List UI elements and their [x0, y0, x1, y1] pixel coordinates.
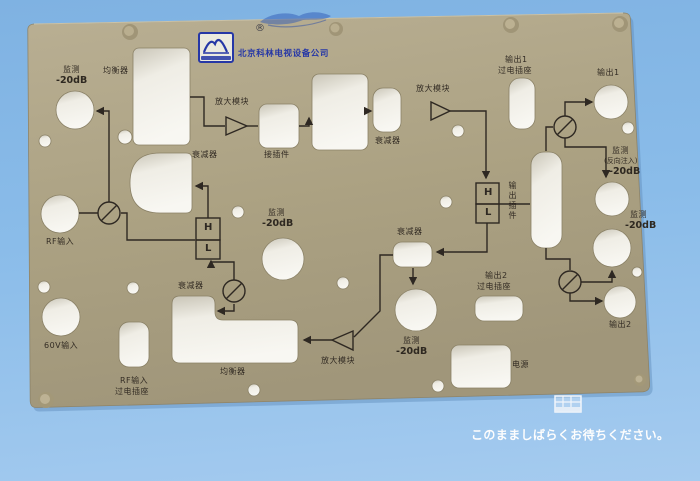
- label-equalizer-top: 均衡器: [103, 66, 129, 75]
- label-low-1: L: [205, 244, 211, 254]
- attenuator-mid-cutout: [393, 242, 432, 267]
- label-equalizer-bottom: 均衡器: [220, 367, 246, 376]
- label-monitor-c-2: -20dB: [262, 219, 293, 228]
- out1-socket-cutout: [509, 78, 535, 129]
- equalizer-cutout: [133, 48, 190, 145]
- label-power: 电源: [512, 360, 529, 369]
- out2-socket-cutout: [475, 296, 523, 321]
- label-rf-socket-1: RF输入: [120, 376, 148, 385]
- label-high-1: H: [204, 223, 212, 233]
- company-name: 北京科林电视设备公司: [238, 47, 329, 59]
- label-monitor-tl-db: -20dB: [56, 76, 87, 85]
- label-attn-mid: 衰减器: [397, 227, 423, 236]
- label-low-2: L: [485, 208, 491, 218]
- monitor-right-hole: [593, 229, 631, 267]
- label-out2-socket-2: 过电插座: [477, 282, 511, 291]
- monitor-center-hole: [262, 238, 304, 280]
- label-output-module: 输出插件: [508, 181, 517, 233]
- label-monitor-b-2: -20dB: [396, 347, 427, 356]
- arch-logo-icon: [199, 33, 233, 62]
- output-module-cutout: [531, 152, 562, 248]
- label-monitor-r-2: -20dB: [625, 221, 656, 230]
- label-attn-l: 衰减器: [178, 281, 204, 290]
- attenuator-c-cutout: [373, 88, 401, 132]
- attenuator-d-cutout: [130, 153, 192, 213]
- label-attn-c: 衰减器: [375, 136, 401, 145]
- monitor-tl-hole: [56, 91, 94, 129]
- out2-hole: [604, 286, 636, 318]
- label-60v-in: 60V输入: [44, 341, 78, 350]
- rf-input-hole: [41, 195, 79, 233]
- label-rf-socket-2: 过电插座: [115, 387, 149, 396]
- label-monitor-rev-2: (反向注入): [604, 157, 637, 166]
- table-grid-icon: [555, 396, 581, 412]
- v60-input-hole: [42, 298, 80, 336]
- label-monitor-b-1: 监测: [403, 336, 420, 345]
- registered-mark: ®: [255, 23, 265, 34]
- wait-message: このまましばらくお待ちください。: [471, 426, 669, 443]
- label-out2-socket-1: 输出2: [485, 271, 508, 280]
- label-amp-bottom: 放大模块: [321, 356, 355, 365]
- rf-socket-cutout: [119, 322, 149, 367]
- label-connector: 接插件: [264, 150, 290, 159]
- label-out1-socket-2: 过电插座: [498, 66, 532, 75]
- label-amp-right: 放大模块: [416, 84, 450, 93]
- monitor-bottom-hole: [395, 289, 437, 331]
- monitor-rev-hole: [595, 182, 629, 216]
- label-out1-socket-1: 输出1: [505, 55, 528, 64]
- screenshot-root: ® 北京科林电视设备公司 监测 -20dB 均衡器 放大模块 接插件 衰减器 放…: [0, 0, 700, 481]
- label-monitor-rev-3: -20dB: [609, 167, 640, 176]
- label-attn-d: 衰减器: [192, 150, 218, 159]
- module-cutout-b: [312, 74, 368, 150]
- label-monitor-tl: 监测: [63, 65, 80, 74]
- label-out1: 输出1: [597, 68, 620, 77]
- out1-hole: [594, 85, 628, 119]
- connector-cutout: [259, 104, 299, 148]
- label-high-2: H: [484, 188, 492, 198]
- label-rf-in: RF输入: [46, 237, 74, 246]
- power-cutout: [451, 345, 511, 388]
- label-monitor-r-1: 监测: [630, 210, 647, 219]
- label-monitor-c-1: 监测: [268, 208, 285, 217]
- label-amp-top: 放大模块: [215, 97, 249, 106]
- label-out2: 输出2: [609, 320, 632, 329]
- label-monitor-rev-1: 监测: [612, 146, 629, 155]
